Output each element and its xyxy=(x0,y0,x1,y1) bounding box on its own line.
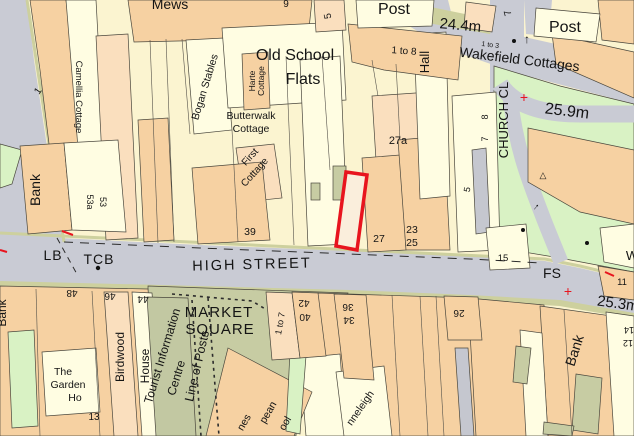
label-12: 12 xyxy=(623,338,633,348)
label-fs: FS xyxy=(543,265,561,281)
label-square: SQUARE xyxy=(185,321,254,338)
strip-northwest-b xyxy=(138,118,174,242)
label-birdwood: Birdwood xyxy=(113,332,127,382)
label-church-cl: CHURCH CL xyxy=(496,82,511,159)
label-34: 34 xyxy=(343,314,355,325)
churchyard-dot-b xyxy=(585,241,589,245)
label-42: 42 xyxy=(298,297,310,308)
arrow-up-icon: ↑ xyxy=(524,32,530,46)
sage-patch-north-b xyxy=(311,183,320,200)
wakefield-dot xyxy=(512,39,516,43)
label-13: 13 xyxy=(88,412,100,423)
label-house: House xyxy=(138,348,152,383)
label-27: 27 xyxy=(373,233,385,245)
label-old-school: Old School xyxy=(256,47,334,64)
sage-patch-south-b xyxy=(572,374,602,434)
label-9: 9 xyxy=(283,0,289,10)
label-14: 14 xyxy=(624,325,634,335)
label-26: 26 xyxy=(453,307,465,318)
label-40: 40 xyxy=(299,311,311,322)
label-harte-line2: Cottage xyxy=(256,66,266,96)
label-44: 44 xyxy=(137,293,149,304)
label-post-right: Post xyxy=(549,19,582,36)
label-25: 25 xyxy=(406,237,418,249)
label-garden-line1: The xyxy=(54,366,72,378)
label-7: 7 xyxy=(480,136,490,141)
label-butterwalk-line1: Butterwalk xyxy=(226,110,276,122)
label-flats: Flats xyxy=(286,71,321,88)
label-garden-line2: Garden xyxy=(50,379,85,391)
label-8: 8 xyxy=(480,114,490,119)
plots-53a-53 xyxy=(64,140,126,232)
label-butterwalk-line2: Cottage xyxy=(233,123,270,135)
red-cross-fs-icon: + xyxy=(564,283,572,299)
label-high-street: HIGH STREET xyxy=(192,255,312,274)
label-bank-sw: Bank xyxy=(0,298,9,326)
green-patch-southwest xyxy=(8,330,38,428)
label-mews: Mews xyxy=(152,0,189,12)
map-canvas: + + △ ↑ ↑ Mews 9 Post Post 24.4m 1 to 3 … xyxy=(0,0,634,436)
triangle-station-icon: △ xyxy=(540,170,547,180)
label-w-partial: W xyxy=(626,248,634,263)
label-post-left: Post xyxy=(378,1,411,18)
label-27a: 27a xyxy=(389,135,408,147)
red-cross-church-icon: + xyxy=(520,89,528,105)
building-top-right-corner xyxy=(598,0,634,44)
label-camellia-cottage: Camellia Cottage xyxy=(73,61,84,134)
label-lb: LB xyxy=(43,247,62,263)
label-46: 46 xyxy=(104,290,116,301)
label-tcb: TCB xyxy=(84,251,115,267)
label-hall: Hall xyxy=(417,51,432,74)
label-48: 48 xyxy=(66,287,78,298)
label-53: 53 xyxy=(98,197,108,207)
map-extract: + + △ ↑ ↑ Mews 9 Post Post 24.4m 1 to 3 … xyxy=(0,0,634,436)
label-53a: 53a xyxy=(85,194,95,209)
label-1-to-8: 1 to 8 xyxy=(391,45,417,58)
label-23: 23 xyxy=(406,224,418,236)
label-garden-line3: Ho xyxy=(68,392,82,404)
label-bank-nw: Bank xyxy=(27,173,43,206)
label-36: 36 xyxy=(342,301,354,312)
label-11: 11 xyxy=(617,277,627,288)
label-15: 15 xyxy=(498,253,509,264)
label-market: MARKET xyxy=(185,304,254,321)
label-39: 39 xyxy=(244,226,256,238)
label-spot-24-4: 24.4m xyxy=(439,15,482,36)
churchyard-dot-a xyxy=(521,228,525,232)
